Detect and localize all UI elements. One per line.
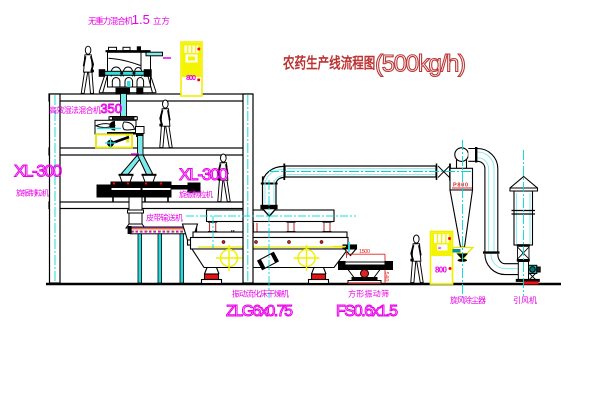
svg-text:540: 540 (383, 272, 389, 282)
svg-text:FS0.6x1.5: FS0.6x1.5 (336, 303, 398, 320)
svg-text:振动流化床干燥机: 振动流化床干燥机 (232, 289, 289, 299)
svg-text:旋风除尘器: 旋风除尘器 (450, 295, 486, 305)
svg-text:(500kg/h): (500kg/h) (375, 51, 466, 78)
svg-text:800: 800 (435, 266, 448, 275)
svg-text:XL-300: XL-300 (14, 162, 62, 181)
svg-text:皮带输送机: 皮带输送机 (146, 213, 183, 223)
svg-text:引风机: 引风机 (513, 295, 537, 305)
svg-text:XL-300: XL-300 (179, 165, 228, 184)
svg-text:农药生产线流程图: 农药生产线流程图 (282, 53, 375, 71)
svg-text:方形振动筛: 方形振动筛 (348, 289, 389, 299)
svg-text:旋振制粒机: 旋振制粒机 (179, 189, 214, 199)
svg-text:800: 800 (186, 73, 196, 82)
svg-text:1500: 1500 (359, 249, 370, 255)
svg-text:ZLG6x0.75: ZLG6x0.75 (226, 303, 293, 320)
svg-text:旋振制粒机: 旋振制粒机 (16, 188, 50, 198)
